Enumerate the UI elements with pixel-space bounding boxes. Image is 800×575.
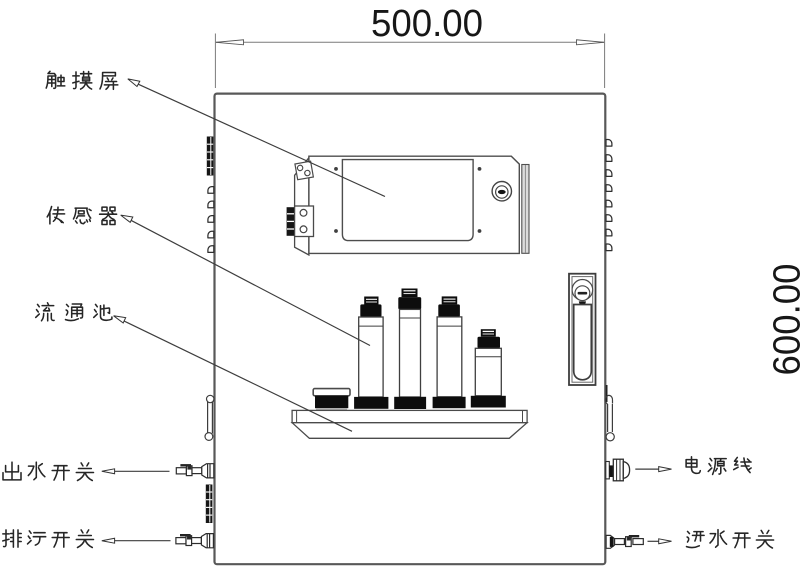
svg-text:600.00: 600.00: [767, 264, 800, 376]
svg-text:500.00: 500.00: [371, 3, 483, 45]
